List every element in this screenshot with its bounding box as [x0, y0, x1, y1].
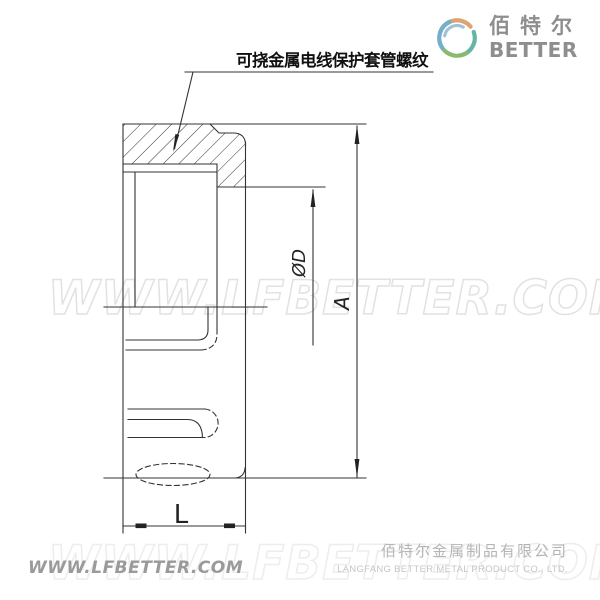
dimension-L: L	[123, 500, 246, 530]
dimension-D: ØD	[289, 189, 315, 346]
footer-website: WWW.LFBETTER.COM	[28, 558, 243, 578]
dim-A-label: A	[330, 296, 354, 312]
footer-company-cn: 佰特尔金属制品有限公司	[337, 540, 568, 561]
thread-annotation-label: 可挠金属电线保护套管螺纹	[236, 47, 428, 71]
dim-D-label: ØD	[289, 249, 310, 278]
footer-company: 佰特尔金属制品有限公司 LANGFANG BETTER METAL PRODUC…	[337, 540, 568, 575]
technical-drawing: A ØD L	[0, 0, 600, 600]
dimension-A: A	[330, 125, 359, 478]
company-logo: 佰特尔 BETTER	[433, 14, 582, 62]
footer-company-en: LANGFANG BETTER METAL PRODUCT CO., LTD.	[337, 564, 568, 575]
dim-L-label: L	[174, 500, 189, 530]
slot-features	[126, 307, 218, 486]
logo-swirl-icon	[433, 14, 481, 62]
logo-name-cn: 佰特尔	[489, 16, 582, 37]
logo-name-en: BETTER	[489, 40, 582, 60]
hole-ellipse	[136, 464, 210, 486]
